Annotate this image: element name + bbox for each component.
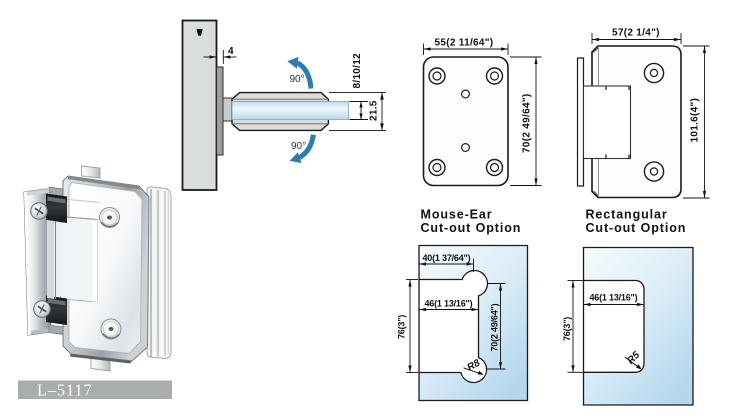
- svg-text:Mouse-Ear: Mouse-Ear: [421, 208, 493, 222]
- svg-text:46(1 13/16"): 46(1 13/16"): [590, 293, 638, 303]
- svg-text:40(1 37/64"): 40(1 37/64"): [423, 253, 471, 263]
- svg-text:70(2 49/64"): 70(2 49/64"): [490, 303, 500, 351]
- svg-text:Rectangular: Rectangular: [586, 208, 668, 222]
- svg-text:21.5: 21.5: [369, 100, 380, 121]
- svg-text:76(3"): 76(3"): [562, 317, 572, 341]
- svg-text:76(3"): 76(3"): [397, 315, 407, 339]
- svg-text:55(2 11/64"): 55(2 11/64"): [435, 38, 494, 49]
- svg-text:R8: R8: [466, 357, 483, 373]
- svg-text:90°: 90°: [290, 74, 305, 85]
- svg-text:R5: R5: [625, 349, 642, 366]
- svg-text:Cut-out Option: Cut-out Option: [421, 221, 522, 235]
- svg-text:90°: 90°: [291, 141, 306, 152]
- svg-text:101.6(4"): 101.6(4"): [690, 98, 701, 143]
- svg-text:70(2 49/64"): 70(2 49/64"): [522, 94, 533, 154]
- svg-text:4: 4: [228, 46, 234, 57]
- svg-text:8/10/12: 8/10/12: [352, 53, 363, 89]
- svg-text:Cut-out Option: Cut-out Option: [586, 221, 687, 235]
- svg-text:L–5117: L–5117: [37, 381, 93, 400]
- svg-text:57(2 1/4"): 57(2 1/4"): [612, 28, 660, 39]
- svg-text:46(1 13/16"): 46(1 13/16"): [425, 299, 473, 309]
